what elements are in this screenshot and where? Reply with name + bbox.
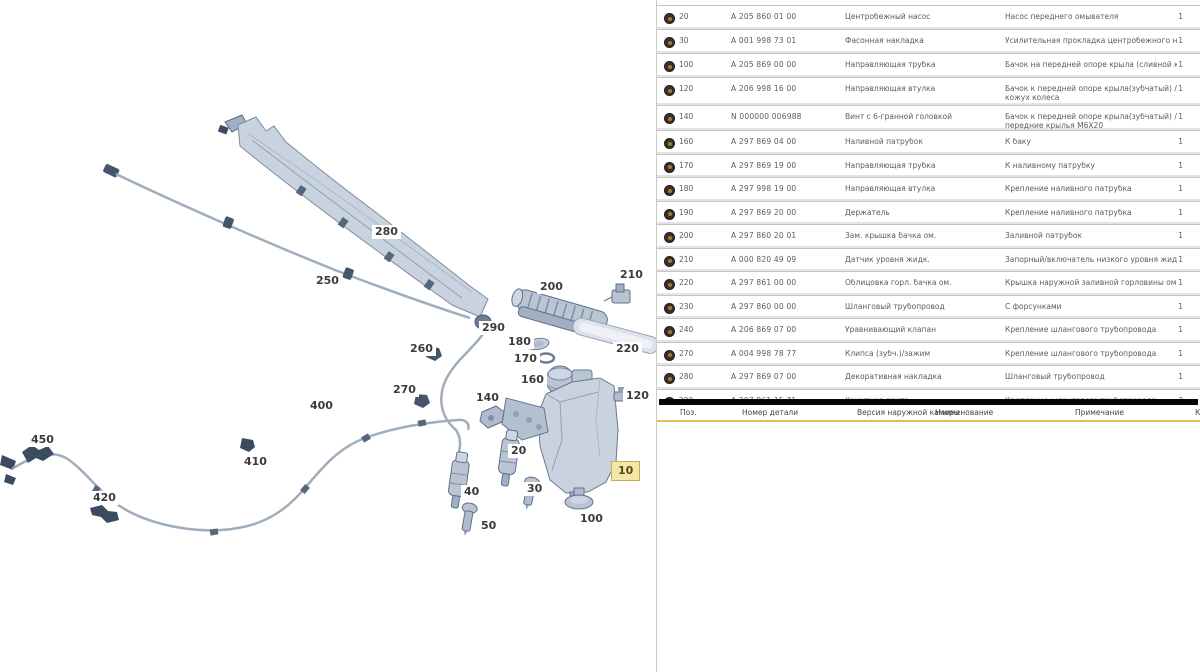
part-info-icon[interactable] [664, 303, 675, 314]
row-name: Клипса (зубч.)/зажим [845, 350, 1000, 359]
row-remark: Бачок на передней опоре крыла (сливной к… [1005, 61, 1177, 70]
row-part-number: A 206 998 16 00 [731, 85, 839, 94]
row-part-number: A 297 998 19 00 [731, 185, 839, 194]
row-qty: 1 [1155, 232, 1183, 241]
part-info-icon[interactable] [664, 37, 675, 48]
row-qty: 1 [1155, 373, 1183, 382]
parts-table-pane: 20A 205 860 01 00Центробежный насосНасос… [657, 0, 1200, 672]
part-info-icon[interactable] [664, 113, 675, 124]
diagram-pane: 2802502902602704004504104202002102201801… [0, 0, 656, 672]
table-row[interactable]: 180A 297 998 19 00Направляющая втулкаКре… [657, 177, 1200, 201]
row-pos: 160 [679, 138, 719, 147]
part-info-icon[interactable] [664, 326, 675, 337]
row-pos: 20 [679, 13, 719, 22]
row-qty: 1 [1155, 113, 1183, 122]
row-part-number: A 297 861 00 00 [731, 279, 839, 288]
table-row[interactable]: 240A 206 869 07 00Уравнивающий клапанКре… [657, 318, 1200, 342]
row-part-number: A 001 998 73 01 [731, 37, 839, 46]
diagram-callout-260[interactable]: 260 [407, 342, 436, 356]
part-info-icon[interactable] [664, 373, 675, 384]
row-part-number: A 297 869 04 00 [731, 138, 839, 147]
row-pos: 230 [679, 303, 719, 312]
diagram-callout-140[interactable]: 140 [473, 391, 502, 405]
row-part-number: A 297 869 19 00 [731, 162, 839, 171]
part-info-icon[interactable] [664, 350, 675, 361]
row-qty: 1 [1155, 209, 1183, 218]
row-pos: 100 [679, 61, 719, 70]
diagram-callout-120[interactable]: 120 [623, 389, 652, 403]
parts-table: 20A 205 860 01 00Центробежный насосНасос… [657, 5, 1200, 399]
row-part-number: A 297 860 00 00 [731, 303, 839, 312]
row-name: Направляющая втулка [845, 185, 1000, 194]
row-name: Направляющая втулка [845, 85, 1000, 94]
header-column: Кол. [1195, 408, 1200, 417]
table-row[interactable]: 190A 297 869 20 00ДержательКрепление нал… [657, 201, 1200, 225]
row-part-number: A 205 869 00 00 [731, 61, 839, 70]
diagram-callout-20[interactable]: 20 [508, 444, 529, 458]
part-hose-250[interactable] [103, 163, 470, 318]
diagram-callout-410[interactable]: 410 [241, 455, 270, 469]
diagram-callout-100[interactable]: 100 [577, 512, 606, 526]
diagram-callout-220[interactable]: 220 [613, 342, 642, 356]
row-pos: 170 [679, 162, 719, 171]
header-column: Номер детали [742, 408, 798, 417]
row-pos: 140 [679, 113, 719, 122]
part-clip-410[interactable] [240, 438, 255, 452]
row-part-number: A 205 860 01 00 [731, 13, 839, 22]
part-valve-210[interactable] [604, 284, 630, 303]
row-pos: 280 [679, 373, 719, 382]
row-name: Шланговый трубопровод [845, 303, 1000, 312]
row-qty: 1 [1155, 350, 1183, 359]
part-info-icon[interactable] [664, 162, 675, 173]
diagram-callout-180[interactable]: 180 [505, 335, 534, 349]
row-pos: 270 [679, 350, 719, 359]
exploded-parts-diagram [0, 0, 656, 672]
part-info-icon[interactable] [664, 279, 675, 290]
row-remark: Заливной патрубок [1005, 232, 1177, 241]
row-remark: С форсунками [1005, 303, 1177, 312]
table-row[interactable]: 170A 297 869 19 00Направляющая трубкаК н… [657, 154, 1200, 178]
diagram-callout-250[interactable]: 250 [313, 274, 342, 288]
part-pump-40[interactable] [446, 451, 471, 509]
row-part-number: N 000000 006988 [731, 113, 839, 122]
row-pos: 30 [679, 37, 719, 46]
row-part-number: A 297 860 20 01 [731, 232, 839, 241]
row-name: Направляющая трубка [845, 162, 1000, 171]
row-qty: 1 [1155, 37, 1183, 46]
row-part-number: A 297 869 07 00 [731, 373, 839, 382]
row-remark: Крепление шлангового трубопровода [1005, 326, 1177, 335]
row-pos: 190 [679, 209, 719, 218]
row-remark: Крепление шлангового трубопровода [1005, 350, 1177, 359]
row-remark: К наливному патрубку [1005, 162, 1177, 171]
table-row[interactable]: 230A 297 860 00 00Шланговый трубопроводС… [657, 295, 1200, 319]
part-cowl-panel-280[interactable] [218, 115, 488, 317]
row-name: Датчик уровня жидк. [845, 256, 1000, 265]
header-accent-line [657, 420, 1200, 422]
row-qty: 1 [1155, 162, 1183, 171]
part-clip-420[interactable] [90, 505, 119, 523]
row-qty: 1 [1155, 185, 1183, 194]
row-pos: 180 [679, 185, 719, 194]
table-row[interactable]: 120A 206 998 16 00Направляющая втулкаБач… [657, 77, 1200, 105]
part-pump-20[interactable] [496, 429, 521, 487]
part-info-icon[interactable] [664, 61, 675, 72]
table-row[interactable]: 160A 297 869 04 00Наливной патрубокК бак… [657, 130, 1200, 154]
row-remark: Бачок к передней опоре крыла(зубчатый) /… [1005, 113, 1177, 130]
row-pos: 220 [679, 279, 719, 288]
diagram-callout-170[interactable]: 170 [511, 352, 540, 366]
row-pos: 210 [679, 256, 719, 265]
diagram-callout-270[interactable]: 270 [390, 383, 419, 397]
table-row[interactable]: 30A 001 998 73 01Фасонная накладкаУсилит… [657, 29, 1200, 53]
part-info-icon[interactable] [664, 256, 675, 267]
diagram-callout-450[interactable]: 450 [28, 433, 57, 447]
row-remark: Крышка наружной заливной горловины омыва… [1005, 279, 1177, 288]
row-remark: Запорный/включатель низкого уровня жидко… [1005, 256, 1177, 265]
diagram-callout-30[interactable]: 30 [524, 482, 545, 496]
header-column: Примечание [1075, 408, 1124, 417]
row-pos: 200 [679, 232, 719, 241]
row-name: Облицовка горл. бачка ом. [845, 279, 1000, 288]
table-row[interactable]: 100A 205 869 00 00Направляющая трубкаБач… [657, 53, 1200, 77]
row-remark: Шланговый трубопровод [1005, 373, 1177, 382]
part-bracket-140[interactable] [480, 406, 504, 428]
table-row[interactable]: 140N 000000 006988Винт с 6-гранной голов… [657, 105, 1200, 130]
row-qty: 1 [1155, 279, 1183, 288]
table-row[interactable]: 20A 205 860 01 00Центробежный насосНасос… [657, 5, 1200, 29]
row-name: Держатель [845, 209, 1000, 218]
diagram-callout-40[interactable]: 40 [461, 485, 482, 499]
row-part-number: A 206 869 07 00 [731, 326, 839, 335]
row-pos: 120 [679, 85, 719, 94]
row-name: Декоративная накладка [845, 373, 1000, 382]
row-part-number: A 004 998 78 77 [731, 350, 839, 359]
table-row[interactable]: 270A 004 998 78 77Клипса (зубч.)/зажимКр… [657, 342, 1200, 366]
table-header-row: Поз.Номер деталиВерсия наружной камерыНа… [657, 405, 1200, 420]
row-remark: Крепление наливного патрубка [1005, 209, 1177, 218]
row-remark: Крепление наливного патрубка [1005, 185, 1177, 194]
part-reservoir-10[interactable] [502, 370, 618, 500]
row-qty: 1 [1155, 85, 1183, 94]
row-name: Центробежный насос [845, 13, 1000, 22]
diagram-callout-160[interactable]: 160 [518, 373, 547, 387]
diagram-callout-420[interactable]: 420 [90, 491, 119, 505]
part-bracket-450[interactable] [22, 445, 54, 463]
row-part-number: A 297 869 20 00 [731, 209, 839, 218]
epc-screen: 2802502902602704004504104202002102201801… [0, 0, 1200, 672]
row-remark: К баку [1005, 138, 1177, 147]
header-column: Наименование [935, 408, 993, 417]
row-remark: Насос переднего омывателя [1005, 13, 1177, 22]
table-row[interactable]: 220A 297 861 00 00Облицовка горл. бачка … [657, 271, 1200, 295]
part-ring-170[interactable] [538, 354, 554, 363]
row-name: Фасонная накладка [845, 37, 1000, 46]
row-qty: 1 [1155, 326, 1183, 335]
diagram-callout-280[interactable]: 280 [372, 225, 401, 239]
row-qty: 1 [1155, 303, 1183, 312]
row-name: Винт с 6-гранной головкой [845, 113, 1000, 122]
row-name: Направляющая трубка [845, 61, 1000, 70]
row-name: Уравнивающий клапан [845, 326, 1000, 335]
table-row[interactable]: 290A 297 861 15 71Хомутная лентаКреплени… [657, 389, 1200, 400]
table-row[interactable]: 200A 297 860 20 01Зам. крышка бачка ом.З… [657, 224, 1200, 248]
diagram-callout-200[interactable]: 200 [537, 280, 566, 294]
table-row[interactable]: 210A 000 820 49 09Датчик уровня жидк.Зап… [657, 248, 1200, 272]
part-info-icon[interactable] [664, 209, 675, 220]
row-pos: 240 [679, 326, 719, 335]
row-name: Зам. крышка бачка ом. [845, 232, 1000, 241]
diagram-callout-400[interactable]: 400 [307, 399, 336, 413]
diagram-callout-10[interactable]: 10 [611, 461, 640, 481]
row-qty: 1 [1155, 138, 1183, 147]
part-info-icon[interactable] [664, 232, 675, 243]
row-qty: 1 [1155, 13, 1183, 22]
diagram-callout-50[interactable]: 50 [478, 519, 499, 533]
part-info-icon[interactable] [664, 13, 675, 24]
row-remark: Бачок к передней опоре крыла(зубчатый) /… [1005, 85, 1177, 102]
part-screw-50[interactable] [457, 502, 478, 537]
row-remark: Усилительная прокладка центробежного нас… [1005, 37, 1177, 46]
part-info-icon[interactable] [664, 138, 675, 149]
row-name: Наливной патрубок [845, 138, 1000, 147]
diagram-callout-290[interactable]: 290 [479, 321, 508, 335]
part-info-icon[interactable] [664, 185, 675, 196]
row-qty: 1 [1155, 61, 1183, 70]
part-hose-400[interactable] [0, 419, 469, 535]
header-column: Поз. [680, 408, 697, 417]
table-row[interactable]: 280A 297 869 07 00Декоративная накладкаШ… [657, 365, 1200, 389]
part-info-icon[interactable] [664, 85, 675, 96]
row-part-number: A 000 820 49 09 [731, 256, 839, 265]
diagram-callout-210[interactable]: 210 [617, 268, 646, 282]
row-qty: 1 [1155, 256, 1183, 265]
